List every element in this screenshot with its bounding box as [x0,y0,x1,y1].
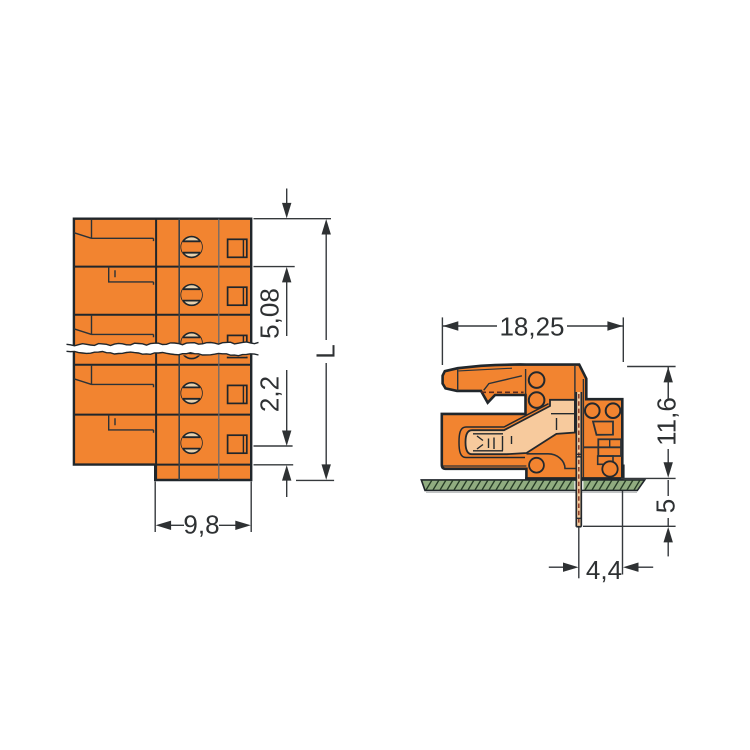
svg-text:L: L [310,344,340,358]
svg-text:2,2: 2,2 [255,376,285,412]
svg-text:5,08: 5,08 [254,288,284,339]
svg-text:5: 5 [651,499,681,513]
svg-text:4,4: 4,4 [586,555,622,585]
svg-text:18,25: 18,25 [499,312,564,342]
svg-text:11,6: 11,6 [652,397,682,446]
svg-text:9,8: 9,8 [183,510,219,540]
